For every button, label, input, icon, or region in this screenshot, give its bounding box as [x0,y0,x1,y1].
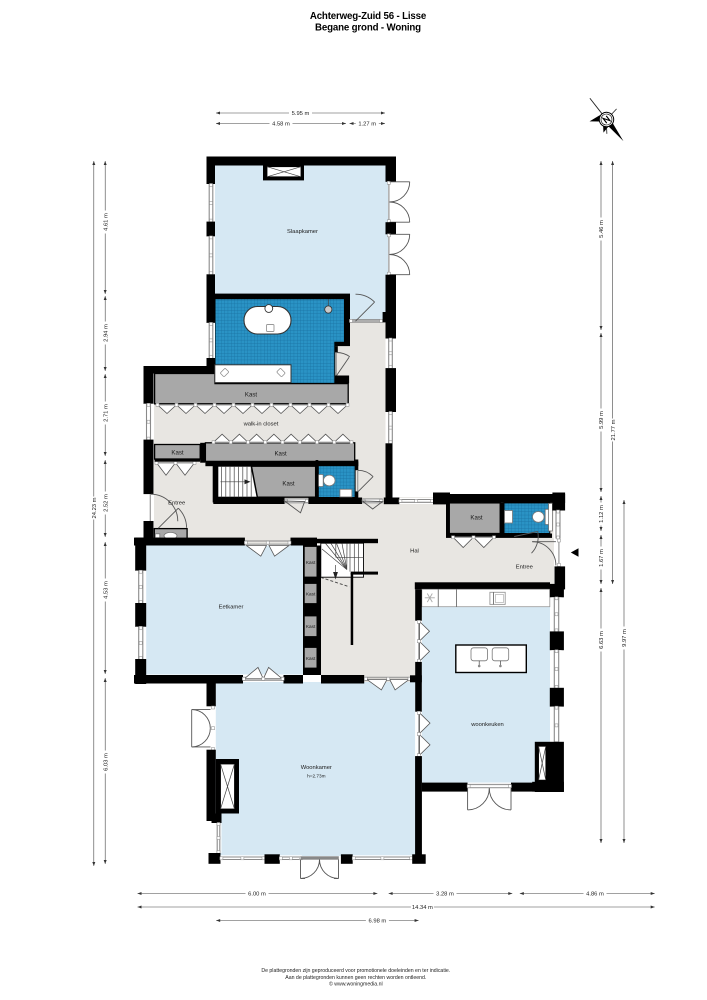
svg-text:h=2.73m: h=2.73m [307,774,325,779]
svg-text:6.03 m: 6.03 m [103,753,109,771]
svg-text:1.12 m: 1.12 m [599,505,605,523]
svg-text:Kast: Kast [306,560,316,565]
svg-text:Kast: Kast [245,392,258,399]
svg-text:Kast: Kast [306,592,316,597]
svg-text:6.98 m: 6.98 m [369,919,387,925]
svg-text:Kast: Kast [470,515,483,522]
svg-text:Slaapkamer: Slaapkamer [287,229,318,235]
svg-text:Kast: Kast [282,481,295,488]
svg-text:Woonkamer: Woonkamer [301,765,332,771]
svg-text:woonkeuken: woonkeuken [470,722,504,728]
svg-text:2.52 m: 2.52 m [103,494,109,512]
svg-text:5.95 m: 5.95 m [292,111,310,117]
svg-text:Kast: Kast [306,624,316,629]
svg-text:Kast: Kast [306,656,316,661]
svg-text:4.86 m: 4.86 m [586,892,604,898]
svg-text:24.23 m: 24.23 m [92,497,98,518]
svg-text:walk-in closet: walk-in closet [243,421,279,427]
svg-text:5.99 m: 5.99 m [599,411,605,429]
svg-text:Kast: Kast [274,450,287,457]
svg-text:4.61 m: 4.61 m [103,213,109,231]
svg-text:2.94 m: 2.94 m [103,324,109,342]
svg-text:4.53 m: 4.53 m [103,581,109,599]
svg-text:Achterweg-Zuid 56 - Lisse: Achterweg-Zuid 56 - Lisse [310,11,427,22]
svg-text:De plattegronden zijn geproduc: De plattegronden zijn geproduceerd voor … [261,968,450,974]
svg-text:Begane grond - Woning: Begane grond - Woning [315,23,421,34]
svg-text:14.34 m: 14.34 m [412,905,433,911]
svg-text:Aan de plattegronden kunnen ge: Aan de plattegronden kunnen geen rechten… [285,975,426,981]
svg-text:Kast: Kast [171,449,184,456]
svg-text:6.63 m: 6.63 m [599,631,605,649]
svg-text:© www.woningmedia.nl: © www.woningmedia.nl [329,981,383,988]
svg-text:5.46 m: 5.46 m [599,220,605,238]
svg-text:9.97 m: 9.97 m [622,629,628,647]
svg-text:3.28 m: 3.28 m [436,892,454,898]
svg-text:2.71 m: 2.71 m [103,404,109,422]
svg-text:1.67 m: 1.67 m [599,549,605,567]
svg-text:21.77 m: 21.77 m [611,419,617,440]
svg-text:Entree: Entree [516,564,533,570]
svg-text:Entree: Entree [168,500,185,506]
svg-text:Eetkamer: Eetkamer [219,604,244,610]
svg-text:Hal: Hal [410,548,419,554]
svg-text:6.00 m: 6.00 m [248,892,266,898]
svg-text:4.58 m: 4.58 m [272,122,290,128]
svg-text:1.27 m: 1.27 m [358,122,376,128]
